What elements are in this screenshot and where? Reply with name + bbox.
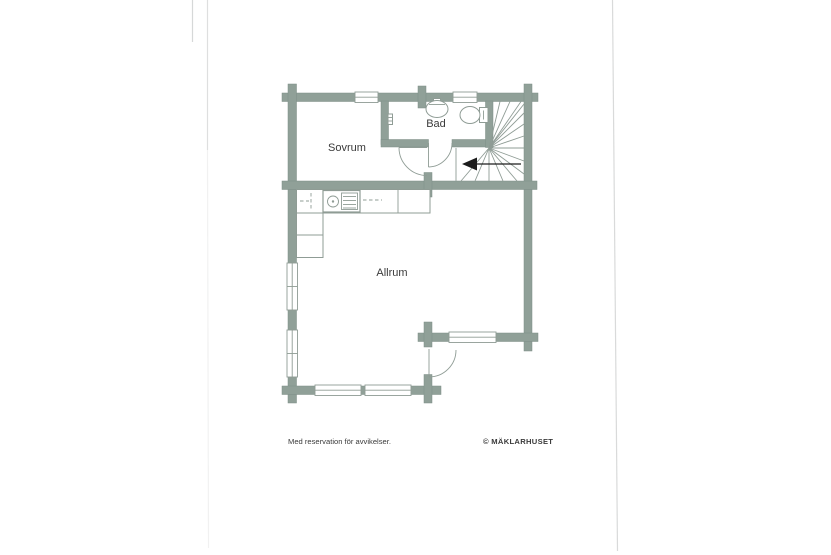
room-label-allrum: Allrum [376, 267, 407, 279]
scanned-floorplan-page: Sovrum Bad Allrum Med reservation för av… [0, 0, 831, 555]
window [453, 92, 477, 103]
footer: Med reservation för avvikelser. © MÄKLAR… [288, 437, 553, 446]
wall-north [282, 93, 538, 102]
window [287, 263, 298, 310]
wall-south [282, 386, 441, 395]
wall-sovrum-east [381, 101, 389, 145]
wall-north-log-stub [418, 86, 426, 108]
counter-top-run [297, 190, 431, 214]
wall-bad-south-right [452, 140, 490, 148]
page-edge-right [613, 0, 618, 551]
window [355, 92, 378, 103]
wall-divider-allrum-north [282, 181, 537, 190]
page-edge-left-3 [208, 150, 209, 548]
wall-bad-south-left [381, 140, 429, 148]
hall-door [399, 148, 427, 176]
floorplan-svg: Sovrum Bad Allrum Med reservation för av… [0, 0, 831, 555]
window [365, 385, 411, 396]
window [315, 385, 361, 396]
window [287, 330, 298, 377]
copyright-text: © MÄKLARHUSET [483, 437, 553, 446]
stair-direction-arrow [462, 158, 521, 171]
window [449, 332, 496, 343]
entrance-door [429, 349, 456, 377]
room-label-sovrum: Sovrum [328, 142, 366, 154]
room-label-bad: Bad [426, 118, 446, 130]
wall-east [524, 84, 532, 351]
disclaimer-text: Med reservation för avvikelser. [288, 437, 391, 446]
bathroom-door [429, 143, 453, 167]
wall-entrance-stub [424, 375, 432, 404]
kitchen-counter [297, 190, 431, 258]
toilet [460, 107, 488, 124]
vent-shaft-mark [388, 114, 393, 125]
wall-se-junction-stub [424, 322, 432, 347]
